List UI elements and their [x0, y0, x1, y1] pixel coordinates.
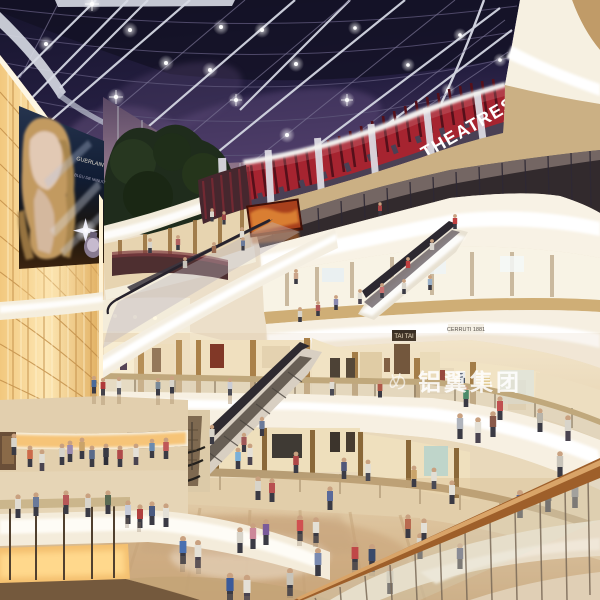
- svg-text:CERRUTI 1881: CERRUTI 1881: [447, 327, 485, 333]
- svg-text:铝翼集团: 铝翼集团: [418, 369, 522, 395]
- svg-text:め: め: [388, 372, 407, 393]
